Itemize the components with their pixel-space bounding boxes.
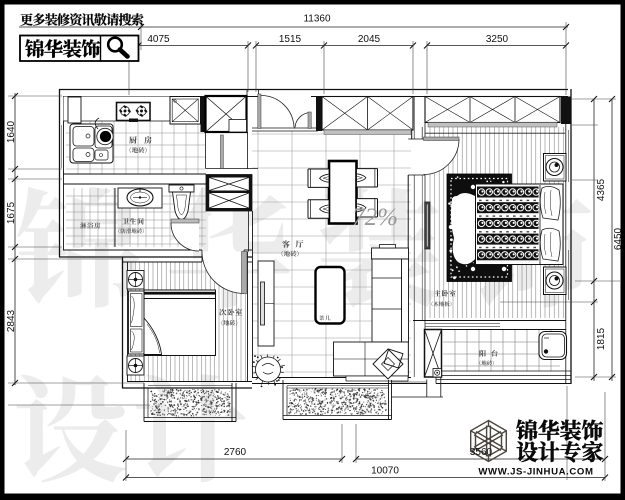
svg-text:2760: 2760 [224,447,247,458]
svg-text:3560: 3560 [470,447,493,458]
svg-text:1815: 1815 [596,327,607,350]
svg-text:1515: 1515 [279,34,302,45]
svg-text:WWW.JS-JINHUA.COM: WWW.JS-JINHUA.COM [478,467,593,478]
svg-text:2045: 2045 [358,34,381,45]
svg-text:1675: 1675 [6,201,17,224]
svg-text:1640: 1640 [6,120,17,143]
svg-text:11360: 11360 [303,14,331,25]
svg-text:10070: 10070 [371,466,399,477]
svg-text:3250: 3250 [486,34,509,45]
svg-text:72%: 72% [352,204,398,231]
svg-text:4365: 4365 [596,178,607,201]
svg-text:2843: 2843 [6,309,17,332]
svg-text:4075: 4075 [147,34,170,45]
